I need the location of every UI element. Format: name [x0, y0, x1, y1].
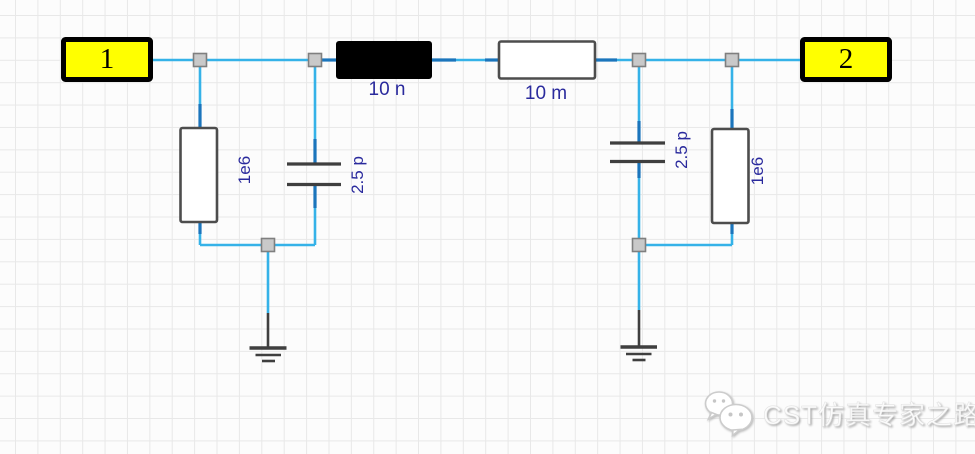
ground-symbol-right[interactable]	[621, 310, 658, 360]
right-shunt-resistor-body[interactable]	[712, 129, 749, 223]
left-capacitor-value-label: 2.5 p	[347, 135, 369, 215]
junction-node[interactable]	[309, 54, 322, 67]
ground-symbol-left[interactable]	[250, 313, 287, 361]
junction-node[interactable]	[633, 239, 646, 252]
left-shunt-resistor-body[interactable]	[181, 128, 218, 222]
watermark: CST仿真专家之路	[702, 389, 975, 437]
junction-node[interactable]	[633, 54, 646, 67]
wechat-icon	[702, 389, 756, 437]
component-pins[interactable]	[200, 60, 732, 234]
inductor-value-label: 10 n	[347, 79, 427, 101]
junction-node[interactable]	[194, 54, 207, 67]
right-capacitor-value-label: 2.5 p	[671, 110, 693, 190]
left-shunt-capacitor-body[interactable]	[287, 164, 341, 185]
series-resistor-body[interactable]	[499, 42, 595, 79]
resistor-value-label: 10 m	[506, 83, 586, 105]
port1-number: 1	[61, 38, 153, 80]
junction-nodes[interactable]	[194, 54, 739, 252]
watermark-text: CST仿真专家之路	[763, 395, 975, 432]
junction-node[interactable]	[262, 239, 275, 252]
left-shunt-resistor-value-label: 1e6	[234, 130, 256, 210]
port2-number: 2	[800, 38, 892, 80]
right-shunt-capacitor-body[interactable]	[610, 143, 665, 162]
right-shunt-resistor-value-label: 1e6	[747, 131, 769, 211]
junction-node[interactable]	[726, 54, 739, 67]
series-inductor-body[interactable]	[337, 42, 431, 78]
schematic-canvas: 1 2 10 n 10 m 1e6 1e6 2.5 p 2.5 p CST仿真专…	[0, 0, 975, 454]
